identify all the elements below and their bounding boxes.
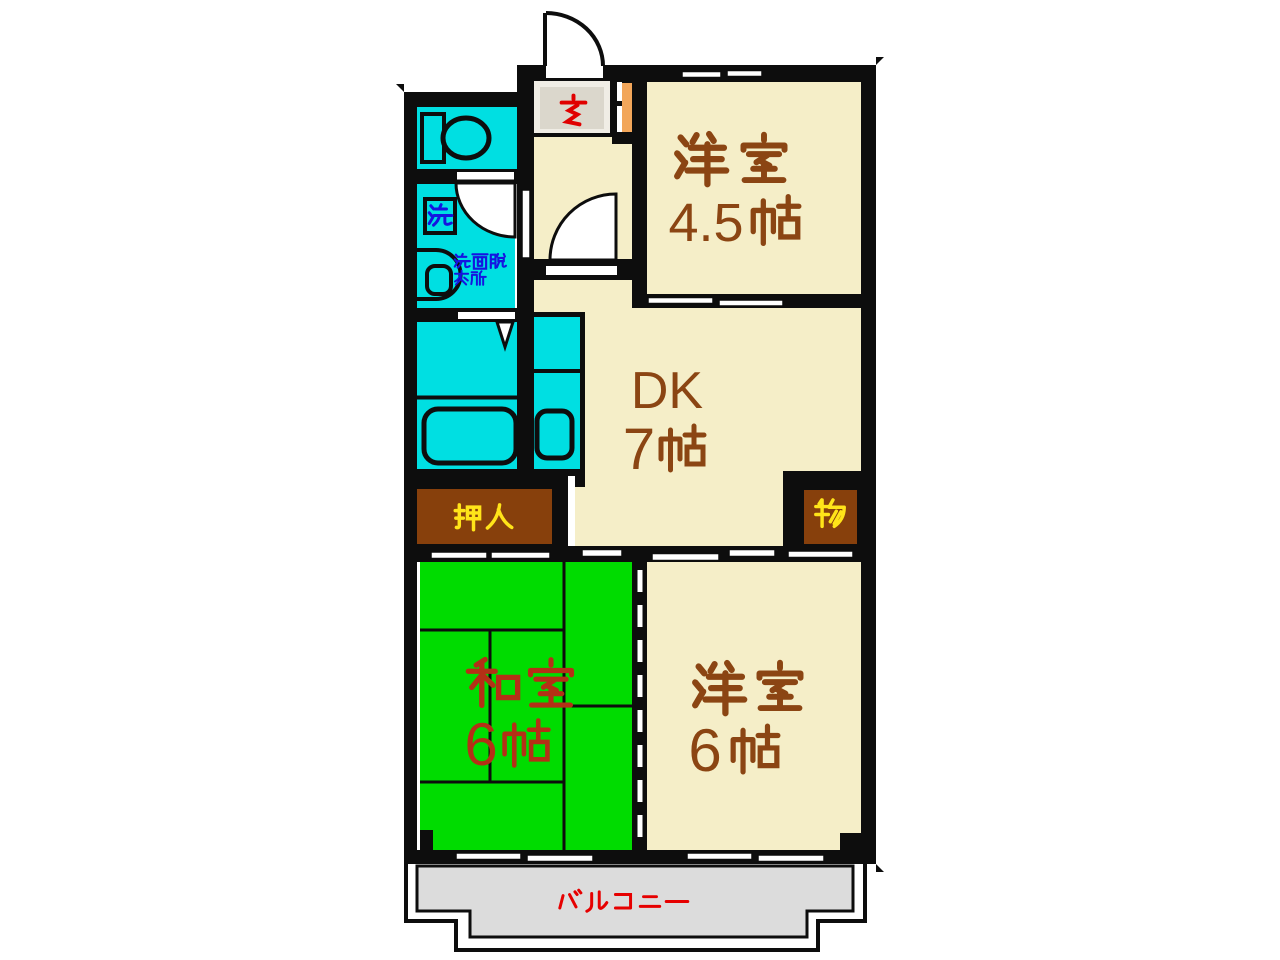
svg-text:DK: DK [631, 362, 704, 420]
svg-text:4.5: 4.5 [668, 193, 743, 253]
svg-text:7: 7 [623, 417, 655, 482]
svg-text:6: 6 [464, 711, 497, 778]
svg-text:6: 6 [688, 717, 721, 784]
